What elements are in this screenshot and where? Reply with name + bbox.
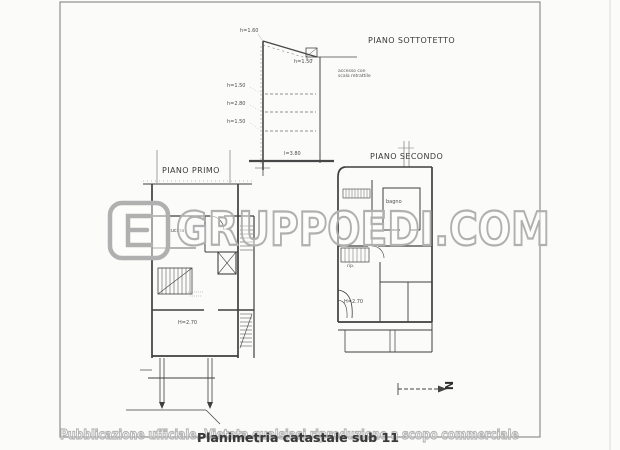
north-arrow-icon (398, 383, 447, 395)
section-eave-height-label: h=1.50 (294, 59, 313, 65)
secondo-height-label: H=2.70 (344, 299, 363, 305)
north-label: N (442, 381, 455, 390)
section-bottom-width-label: l=3.80 (284, 151, 301, 157)
watermark-brand: GRUPPOEDI.COM (176, 202, 550, 256)
piano-primo-plan (126, 150, 254, 424)
section-sottotetto-drawing (249, 34, 357, 176)
primo-height-label: H=2.70 (178, 320, 197, 326)
gruppoedi-logo-icon (106, 200, 172, 262)
section-access-note: accesso con scala retrattile (338, 69, 371, 79)
section-left-height-1: h=1.50 (227, 83, 246, 89)
section-left-height-3: h=1.50 (227, 119, 246, 125)
title-piano-sottotetto: PIANO SOTTOTETTO (368, 36, 455, 45)
scanned-cadastral-document: { "titles": { "sottotetto": "PIANO SOTTO… (0, 0, 620, 450)
title-piano-secondo: PIANO SECONDO (370, 152, 443, 161)
secondo-storage-label: rip. (347, 264, 354, 269)
title-piano-primo: PIANO PRIMO (162, 166, 220, 175)
section-top-height-label: h=1.60 (240, 28, 259, 34)
document-caption: Planimetria catastale sub 11 (178, 430, 418, 445)
section-left-height-2: h=2.80 (227, 101, 246, 107)
access-note-line2: scala retrattile (338, 74, 371, 79)
